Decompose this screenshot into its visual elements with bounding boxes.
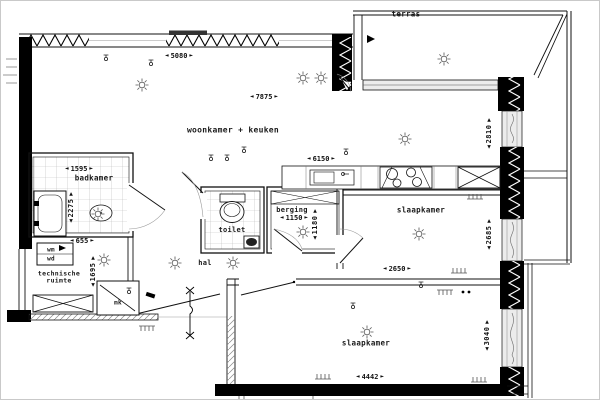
room-label-hal: hal xyxy=(198,259,212,267)
ceiling-light-icon xyxy=(413,228,426,241)
socket-icon xyxy=(149,60,154,66)
kitchen-counter xyxy=(282,166,500,189)
dim-arrow-down-icon: ▼ xyxy=(313,235,317,241)
ceiling-light-icon xyxy=(297,72,310,85)
socket-icon xyxy=(209,155,214,161)
badkamer-room xyxy=(29,153,165,237)
bedroom2-left-wall xyxy=(227,279,235,384)
dim-arrow-left-icon: ◄ xyxy=(165,53,169,59)
dimension-kitchen-zone-depth: ▲ 2810 ▼ xyxy=(485,118,493,151)
window-bedroom2 xyxy=(502,309,522,367)
dimension-kitchen-width: ◄ 6150 ► xyxy=(307,155,335,163)
dim-arrow-right-icon: ► xyxy=(407,266,411,272)
appliance-label-washer: wm xyxy=(47,247,55,254)
ceiling-light-icon xyxy=(399,133,412,146)
radiator-icon xyxy=(451,268,467,273)
dimension-bedroom1-depth: ▲ 2685 ▼ xyxy=(485,219,493,252)
room-label-woonkamer-keuken: woonkamer + keuken xyxy=(187,126,279,135)
window-bedroom1 xyxy=(502,219,522,261)
dim-arrow-left-icon: ◄ xyxy=(307,156,311,162)
ceiling-light-icon xyxy=(227,257,240,270)
dim-arrow-up-icon: ▲ xyxy=(313,209,317,215)
dim-arrow-right-icon: ► xyxy=(304,215,308,221)
dim-arrow-left-icon: ◄ xyxy=(70,238,74,244)
socket-icon xyxy=(242,147,247,153)
dimension-window-width: ◄ 5080 ► xyxy=(165,52,193,60)
room-label-badkamer: badkamer xyxy=(75,174,114,183)
room-label-slaapkamer-2: slaapkamer xyxy=(342,339,390,348)
room-label-meterkast: mk xyxy=(114,300,122,307)
dim-arrow-right-icon: ► xyxy=(89,166,93,172)
wall-marking xyxy=(169,31,207,36)
corner-basin-icon xyxy=(244,236,259,248)
wall-lamp-icon xyxy=(367,35,375,43)
dim-arrow-right-icon: ► xyxy=(380,374,384,380)
left-exterior-wall xyxy=(3,37,32,322)
socket-dot-icon xyxy=(462,291,465,294)
dim-arrow-down-icon: ▼ xyxy=(487,245,491,251)
section-marker-icon xyxy=(186,287,194,339)
ceiling-light-icon xyxy=(315,72,328,85)
ceiling-light-icon xyxy=(297,226,310,239)
window-kitchen xyxy=(502,111,522,147)
dimension-badkamer-width: ◄ 1595 ► xyxy=(65,165,93,173)
socket-icon xyxy=(104,55,109,61)
room-label-terras: terras xyxy=(392,10,421,19)
bottom-exterior-wall xyxy=(215,384,528,400)
right-exterior-wall xyxy=(498,77,570,398)
radiator-icon xyxy=(139,326,155,331)
dim-arrow-down-icon: ▼ xyxy=(91,282,95,288)
dimension-badkamer-depth: ▲ 2275 ▼ xyxy=(67,192,75,225)
dimension-bedroom2-width-bottom: ◄ 4442 ► xyxy=(356,373,384,381)
dim-arrow-up-icon: ▲ xyxy=(487,118,491,124)
dim-arrow-down-icon: ▼ xyxy=(485,346,489,352)
shaft-icon xyxy=(33,295,93,312)
terras-sliding-door xyxy=(337,35,498,91)
entrance-door-leaf xyxy=(136,294,220,314)
ceiling-light-icon xyxy=(136,79,149,92)
dimension-bedroom2-width-top: ◄ 2650 ► xyxy=(383,265,411,273)
socket-dot-icon xyxy=(468,291,471,294)
floor-plan: terras woonkamer + keuken ◄ 5080 ► ◄ 787… xyxy=(0,0,600,400)
terras-outline xyxy=(353,11,571,263)
gallery-edge xyxy=(524,260,570,398)
appliance-label-dryer: wd xyxy=(47,256,55,263)
socket-icon xyxy=(225,155,230,161)
doorbell-icon xyxy=(146,292,156,299)
bedroom-divider-wall xyxy=(227,277,500,295)
bath-icon xyxy=(34,191,66,236)
room-label-berging: berging xyxy=(276,206,308,214)
dimension-berging-width: ◄ 1150 ► xyxy=(280,214,308,222)
dim-arrow-up-icon: ▲ xyxy=(69,192,73,198)
dim-arrow-right-icon: ► xyxy=(90,238,94,244)
dim-arrow-left-icon: ◄ xyxy=(383,266,387,272)
radiator-icon xyxy=(437,290,453,295)
ceiling-light-icon xyxy=(169,257,182,270)
dimension-bedroom2-depth: ▲ 3040 ▼ xyxy=(483,320,491,353)
floor-plan-drawing xyxy=(1,1,600,400)
toilet-door-leaf xyxy=(182,172,203,193)
dim-arrow-right-icon: ► xyxy=(274,94,278,100)
dimension-living-width: ◄ 7875 ► xyxy=(250,93,278,101)
berging-cupboard xyxy=(271,191,339,204)
dim-arrow-left-icon: ◄ xyxy=(250,94,254,100)
meterkast-closet xyxy=(97,281,139,315)
radiator-icon xyxy=(315,374,331,379)
dim-arrow-right-icon: ► xyxy=(189,53,193,59)
dim-arrow-down-icon: ▼ xyxy=(487,144,491,150)
radiator-icon xyxy=(471,377,487,382)
toilet-room xyxy=(182,172,264,253)
dim-arrow-up-icon: ▲ xyxy=(485,320,489,326)
ceiling-light-icon xyxy=(361,326,374,339)
ceiling-light-icon xyxy=(438,53,451,66)
dim-arrow-down-icon: ▼ xyxy=(69,218,73,224)
ceiling-light-icon xyxy=(98,254,111,267)
dim-arrow-right-icon: ► xyxy=(331,156,335,162)
dimension-berging-depth: ▲ 1180 ▼ xyxy=(311,209,319,242)
room-label-slaapkamer-1: slaapkamer xyxy=(397,206,445,215)
dim-arrow-left-icon: ◄ xyxy=(65,166,69,172)
kitchen-bedroom1-wall xyxy=(343,190,500,195)
socket-icon xyxy=(351,303,356,309)
dimension-tech-width: ◄ 655 ► xyxy=(70,237,94,245)
wc-icon xyxy=(220,194,245,223)
dim-arrow-up-icon: ▲ xyxy=(487,219,491,225)
room-label-toilet: toilet xyxy=(218,226,245,234)
dim-arrow-up-icon: ▲ xyxy=(91,256,95,262)
socket-icon xyxy=(344,149,349,155)
dim-arrow-left-icon: ◄ xyxy=(280,215,284,221)
dim-arrow-left-icon: ◄ xyxy=(356,374,360,380)
exterior-marks xyxy=(3,59,17,83)
room-label-technische-ruimte: technische ruimte xyxy=(38,271,80,286)
dimension-tech-depth: ▲ 1695 ▼ xyxy=(89,256,97,289)
